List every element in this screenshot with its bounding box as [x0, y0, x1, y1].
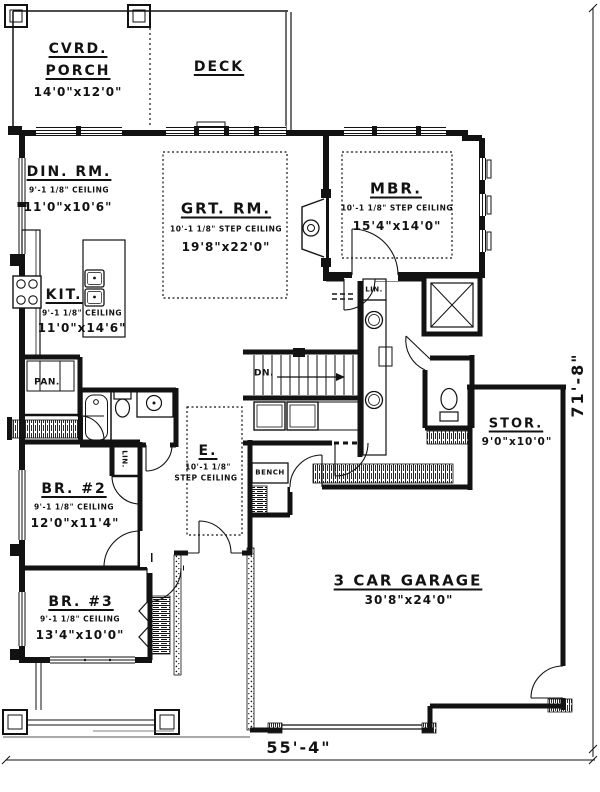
main-bath-fixtures — [82, 391, 173, 444]
garage-door — [268, 722, 436, 733]
room-label-pantry: PAN. — [34, 379, 60, 388]
bench-label: BENCH — [255, 470, 284, 477]
room-label-deck: DECK — [194, 60, 244, 74]
front-porch — [3, 663, 250, 737]
room-label-great: GRT. RM. — [181, 202, 271, 217]
stove — [13, 276, 41, 308]
room-dims-bedroom2: 12'0"x11'4" — [31, 517, 120, 529]
room-label-porch-2: PORCH — [46, 64, 111, 78]
room-ceiling-bedroom2: 9'-1 1/8" CEILING — [34, 503, 114, 511]
room-ceiling-kitchen: 9'-1 1/8" CEILING — [42, 309, 122, 317]
dryer — [287, 402, 318, 430]
room-ceiling-great: 10'-1 1/8" STEP CEILING — [170, 225, 282, 233]
room-ceiling-bedroom3: 9'-1 1/8" CEILING — [40, 615, 120, 623]
room-label-entry: E. — [199, 444, 218, 458]
room-ceiling-dining: 9'-1 1/8" CEILING — [29, 186, 109, 194]
room-dims-storage: 9'0"x10'0" — [482, 437, 553, 448]
floor-plan-drawing — [0, 0, 600, 792]
closet-hatching — [7, 417, 572, 712]
room-label-kitchen: KIT. — [46, 288, 83, 302]
room-dims-great: 19'8"x22'0" — [182, 241, 271, 253]
room-label-bedroom2: BR. #2 — [41, 482, 106, 496]
toilet — [116, 399, 130, 417]
room-dims-dining: 11'0"x10'6" — [24, 201, 113, 213]
room-label-bedroom3: BR. #3 — [48, 595, 113, 609]
room-label-dining: DIN. RM. — [27, 165, 112, 179]
room-label-porch-1: CVRD. — [49, 42, 108, 56]
room-label-linen-hall: LIN. — [121, 450, 128, 468]
room-ceiling-entry-1: 10'-1 1/8" — [185, 463, 231, 471]
washer — [254, 402, 285, 430]
stoop-walls — [174, 548, 254, 730]
stairs-down-label: DN. — [254, 370, 274, 379]
floor-plan-page: CVRD. PORCH 14'0"x12'0" DECK DIN. RM. 9'… — [0, 0, 600, 792]
room-label-master: MBR. — [370, 182, 422, 197]
laundry-appliances — [254, 402, 360, 430]
laundry-counter — [318, 402, 360, 430]
overall-width-dimension: 55'-4" — [266, 740, 331, 756]
room-ceiling-master: 10'-1 1/8" STEP CEILING — [341, 204, 453, 212]
room-dims-bedroom3: 13'4"x10'0" — [36, 629, 125, 641]
room-label-storage: STOR. — [489, 418, 543, 431]
room-dims-master: 15'4"x14'0" — [353, 220, 442, 232]
room-label-linen-master: LIN. — [365, 287, 383, 294]
room-ceiling-entry-2: STEP CEILING — [174, 474, 237, 482]
room-dims-garage: 30'8"x24'0" — [365, 594, 454, 606]
room-dims-porch: 14'0"x12'0" — [34, 86, 123, 98]
master-toilet — [441, 389, 457, 410]
overall-height-dimension: 71'-8" — [570, 352, 586, 417]
room-label-garage: 3 CAR GARAGE — [334, 574, 483, 589]
room-dims-kitchen: 11'0"x14'6" — [38, 322, 127, 334]
